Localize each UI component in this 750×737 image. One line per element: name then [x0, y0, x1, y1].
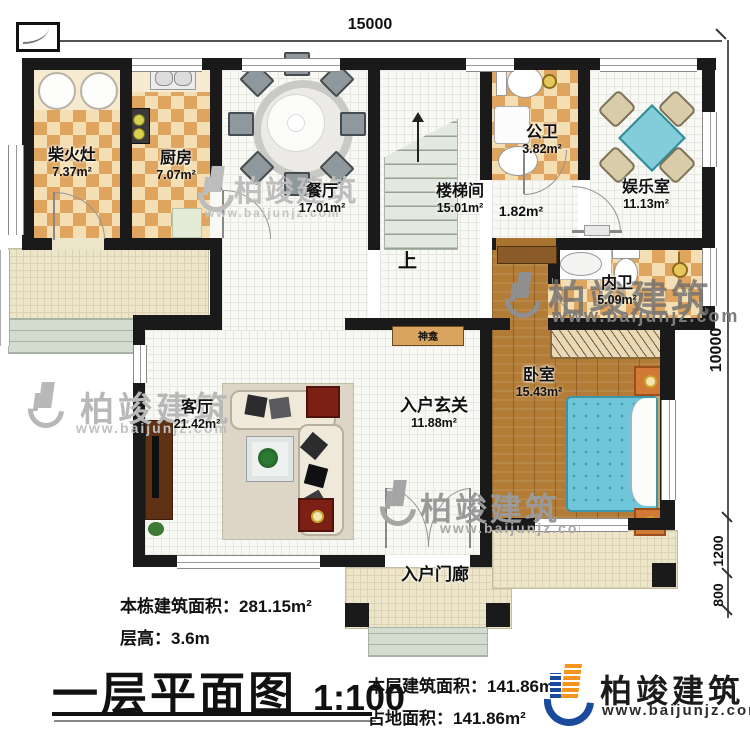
dimension-right-mid-label: 1200	[710, 525, 726, 577]
side-table-red	[298, 498, 334, 532]
room-name: 卧室	[503, 367, 575, 385]
room-label-private-wc: 内卫 5.09m²	[584, 275, 650, 308]
stat-label: 本栋建筑面积：	[120, 597, 239, 616]
room-area: 17.01m²	[282, 201, 362, 216]
dimension-tick	[715, 28, 726, 39]
shrine-cabinet: 神龛	[392, 326, 464, 346]
room-label-living: 客厅 21.42m²	[158, 399, 236, 432]
terrace-side-rail	[0, 250, 10, 346]
plant	[258, 448, 278, 468]
stairs-up-label: 上	[398, 246, 417, 273]
watermark-url: www.baijunjz.com	[552, 306, 748, 327]
title-underline-thick	[52, 712, 372, 716]
stove-burner	[133, 114, 145, 126]
window	[466, 58, 514, 72]
porch-floor-right	[492, 530, 678, 589]
room-area: 11.88m²	[392, 416, 476, 431]
wall	[578, 70, 590, 180]
room-name: 楼梯间	[422, 183, 498, 201]
tv	[152, 436, 159, 498]
side-table-red	[306, 386, 340, 418]
room-name: 客厅	[158, 399, 236, 417]
table-lamp	[311, 510, 324, 523]
room-label-corridor: 1.82m²	[488, 203, 554, 220]
room-name: 厨房	[136, 150, 216, 168]
sink-basin	[174, 70, 192, 86]
room-name: 娱乐室	[604, 179, 688, 197]
title-underline-thin	[54, 720, 376, 722]
room-area: 7.37m²	[22, 165, 122, 180]
dining-chair	[340, 112, 366, 136]
woodstove-pot	[38, 72, 76, 110]
wall	[133, 315, 222, 330]
watermark-url: www.baijunjz.com	[440, 520, 580, 536]
room-label-foyer: 入户玄关 11.88m²	[392, 397, 476, 431]
nightstand-lamp	[644, 375, 657, 388]
floor-height: 层高：3.6m	[120, 624, 210, 649]
wall	[480, 70, 492, 180]
dimension-line-right	[727, 40, 729, 618]
room-area: 7.07m²	[136, 168, 216, 183]
shrine-label: 神龛	[418, 332, 438, 343]
room-label-entertainment: 娱乐室 11.13m²	[604, 179, 688, 212]
stove-burner	[133, 128, 145, 140]
kitchen-appliance	[172, 208, 202, 238]
terrace-floor	[8, 248, 209, 320]
sofa-cushion	[244, 394, 267, 417]
room-label-bedroom: 卧室 15.43m²	[503, 367, 575, 400]
footprint-area: 占地面积：141.86m²	[368, 704, 526, 729]
room-area: 1.82m²	[488, 203, 554, 220]
plant-small	[148, 522, 164, 536]
porch-pillar	[652, 563, 676, 587]
bed-blanket-fold	[630, 398, 656, 506]
window	[177, 555, 320, 569]
room-name: 入户门廊	[384, 566, 486, 585]
room-label-kitchen: 厨房 7.07m²	[136, 150, 216, 183]
room-label-public-wc: 公卫 3.82m²	[506, 124, 578, 157]
shower-knob	[542, 74, 557, 89]
woodstove-pot	[80, 72, 118, 110]
room-label-porch: 入户门廊	[384, 566, 486, 585]
chimney-flue-curve	[23, 27, 49, 44]
dining-chair	[228, 112, 254, 136]
room-label-woodstove: 柴火灶 7.37m²	[22, 147, 122, 180]
stairs-direction-arrowhead	[412, 106, 424, 122]
floor-area: 本层建筑面积：141.86m²	[368, 672, 560, 697]
stat-label: 本层建筑面积：	[368, 677, 487, 696]
room-area: 15.43m²	[503, 385, 575, 400]
window	[242, 58, 340, 72]
door-handle	[584, 225, 610, 236]
porch-pillar	[345, 603, 369, 627]
room-name: 入户玄关	[392, 397, 476, 416]
room-area: 5.09m²	[584, 293, 650, 308]
room-name: 餐厅	[282, 183, 362, 201]
watermark-logo	[28, 382, 68, 432]
dimension-right-lower-label: 800	[710, 577, 726, 613]
room-area: 3.82m²	[506, 142, 578, 157]
sink-basin	[155, 70, 173, 86]
window	[133, 345, 147, 383]
window	[702, 112, 717, 167]
room-name: 内卫	[584, 275, 650, 293]
floor-plan: 15000 10000 1200 800	[0, 0, 750, 737]
stat-value: 281.15m²	[239, 597, 312, 616]
brand-url: www.baijunjz.com	[602, 702, 750, 719]
brand-building-blue	[550, 673, 561, 698]
door-opening	[52, 238, 104, 250]
room-area: 21.42m²	[158, 417, 236, 432]
stat-value: 3.6m	[171, 629, 210, 648]
room-name: 柴火灶	[22, 147, 122, 165]
chimney-box	[16, 22, 60, 52]
bedroom-door-leaf	[497, 246, 557, 264]
porch-pillar	[486, 603, 510, 627]
room-label-stairwell: 楼梯间 15.01m²	[422, 183, 498, 216]
stat-label: 占地面积：	[368, 709, 453, 728]
watermark-logo	[505, 272, 547, 322]
room-area: 15.01m²	[422, 201, 498, 216]
brand-logo-mark	[544, 660, 590, 728]
sofa-cushion	[269, 397, 292, 420]
window	[600, 58, 697, 72]
dining-table-center	[287, 114, 305, 132]
building-total-area: 本栋建筑面积：281.15m²	[120, 592, 312, 617]
stat-label: 层高：	[120, 629, 171, 648]
shower-hose	[678, 252, 680, 264]
stat-value: 141.86m²	[453, 709, 526, 728]
window	[132, 58, 202, 72]
stairs-direction-line	[417, 116, 419, 162]
door-leaf	[523, 150, 525, 194]
room-name: 公卫	[506, 124, 578, 142]
toilet	[496, 70, 507, 96]
door-leaf	[53, 192, 55, 240]
wall	[368, 70, 380, 250]
porch-steps	[368, 627, 488, 657]
dimension-top-label: 15000	[330, 16, 410, 34]
dimension-line-top	[22, 40, 722, 42]
window	[661, 400, 676, 500]
terrace-steps	[8, 318, 134, 354]
watermark-logo	[380, 480, 418, 528]
room-label-dining: 餐厅 17.01m²	[282, 183, 362, 216]
room-area: 11.13m²	[604, 197, 688, 212]
